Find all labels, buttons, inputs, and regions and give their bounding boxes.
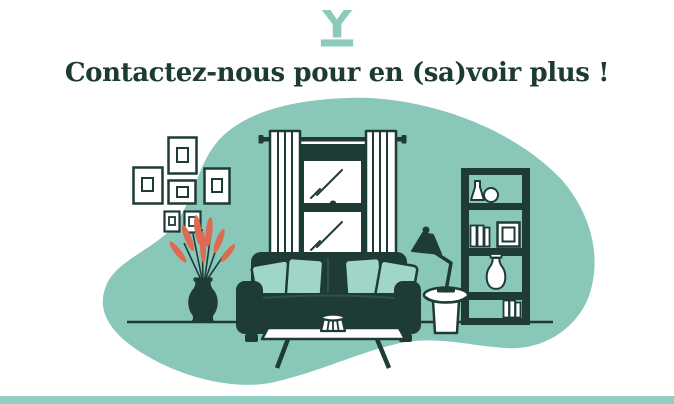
logo-container	[0, 8, 674, 48]
shelf-books	[471, 226, 490, 247]
picture-frame	[169, 138, 197, 174]
curtain-rod-cap	[402, 135, 407, 144]
curtain-left	[265, 131, 305, 261]
living-room-illustration	[0, 95, 674, 396]
shelf-sphere	[484, 188, 498, 202]
picture-frame	[165, 212, 180, 232]
shelf-picture-frame	[498, 223, 520, 247]
sofa-armrest-right	[394, 281, 421, 334]
picture-frame	[134, 168, 163, 204]
curtain-rod-cap	[259, 135, 264, 144]
shelf-books	[504, 301, 521, 318]
page-title: Contactez-nous pour en (sa)voir plus !	[0, 56, 674, 90]
side-table-base	[433, 301, 459, 333]
sofa-armrest-left	[236, 281, 263, 334]
contact-section: Contactez-nous pour en (sa)voir plus !	[0, 0, 674, 404]
curtain-right	[361, 131, 401, 261]
window-latch	[330, 201, 337, 208]
logo-y-shape	[322, 10, 352, 38]
picture-frame	[205, 169, 230, 204]
logo-base-bar	[321, 39, 353, 46]
y-monogram-logo-icon	[318, 8, 356, 48]
sofa-leg	[245, 334, 258, 342]
window	[296, 140, 369, 255]
footer-accent-bar	[0, 396, 674, 404]
table-pot	[321, 315, 345, 332]
picture-frame	[169, 181, 196, 204]
illustration-container	[0, 95, 674, 396]
lamp-base	[437, 288, 455, 293]
